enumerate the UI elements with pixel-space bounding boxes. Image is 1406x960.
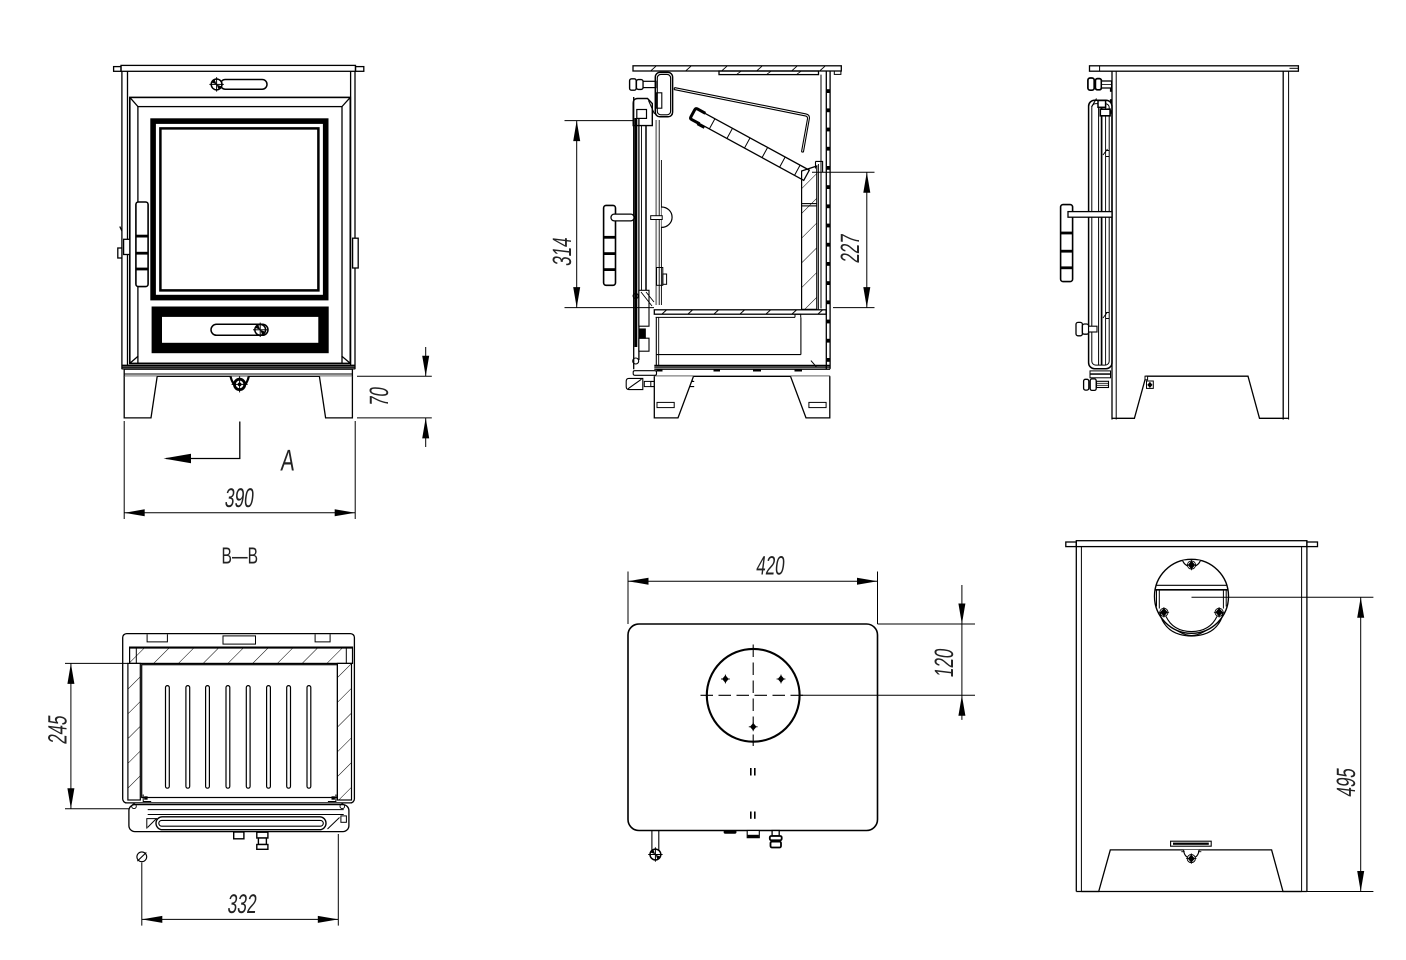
svg-text:332: 332 xyxy=(226,888,259,919)
svg-text:390: 390 xyxy=(223,482,256,513)
svg-text:70: 70 xyxy=(364,385,394,407)
svg-text:227: 227 xyxy=(835,232,865,264)
svg-text:495: 495 xyxy=(1332,766,1362,798)
svg-text:B—B: B—B xyxy=(222,544,258,570)
svg-text:420: 420 xyxy=(755,551,787,581)
svg-text:120: 120 xyxy=(929,647,959,679)
svg-text:245: 245 xyxy=(43,713,73,745)
svg-text:314: 314 xyxy=(547,235,577,267)
